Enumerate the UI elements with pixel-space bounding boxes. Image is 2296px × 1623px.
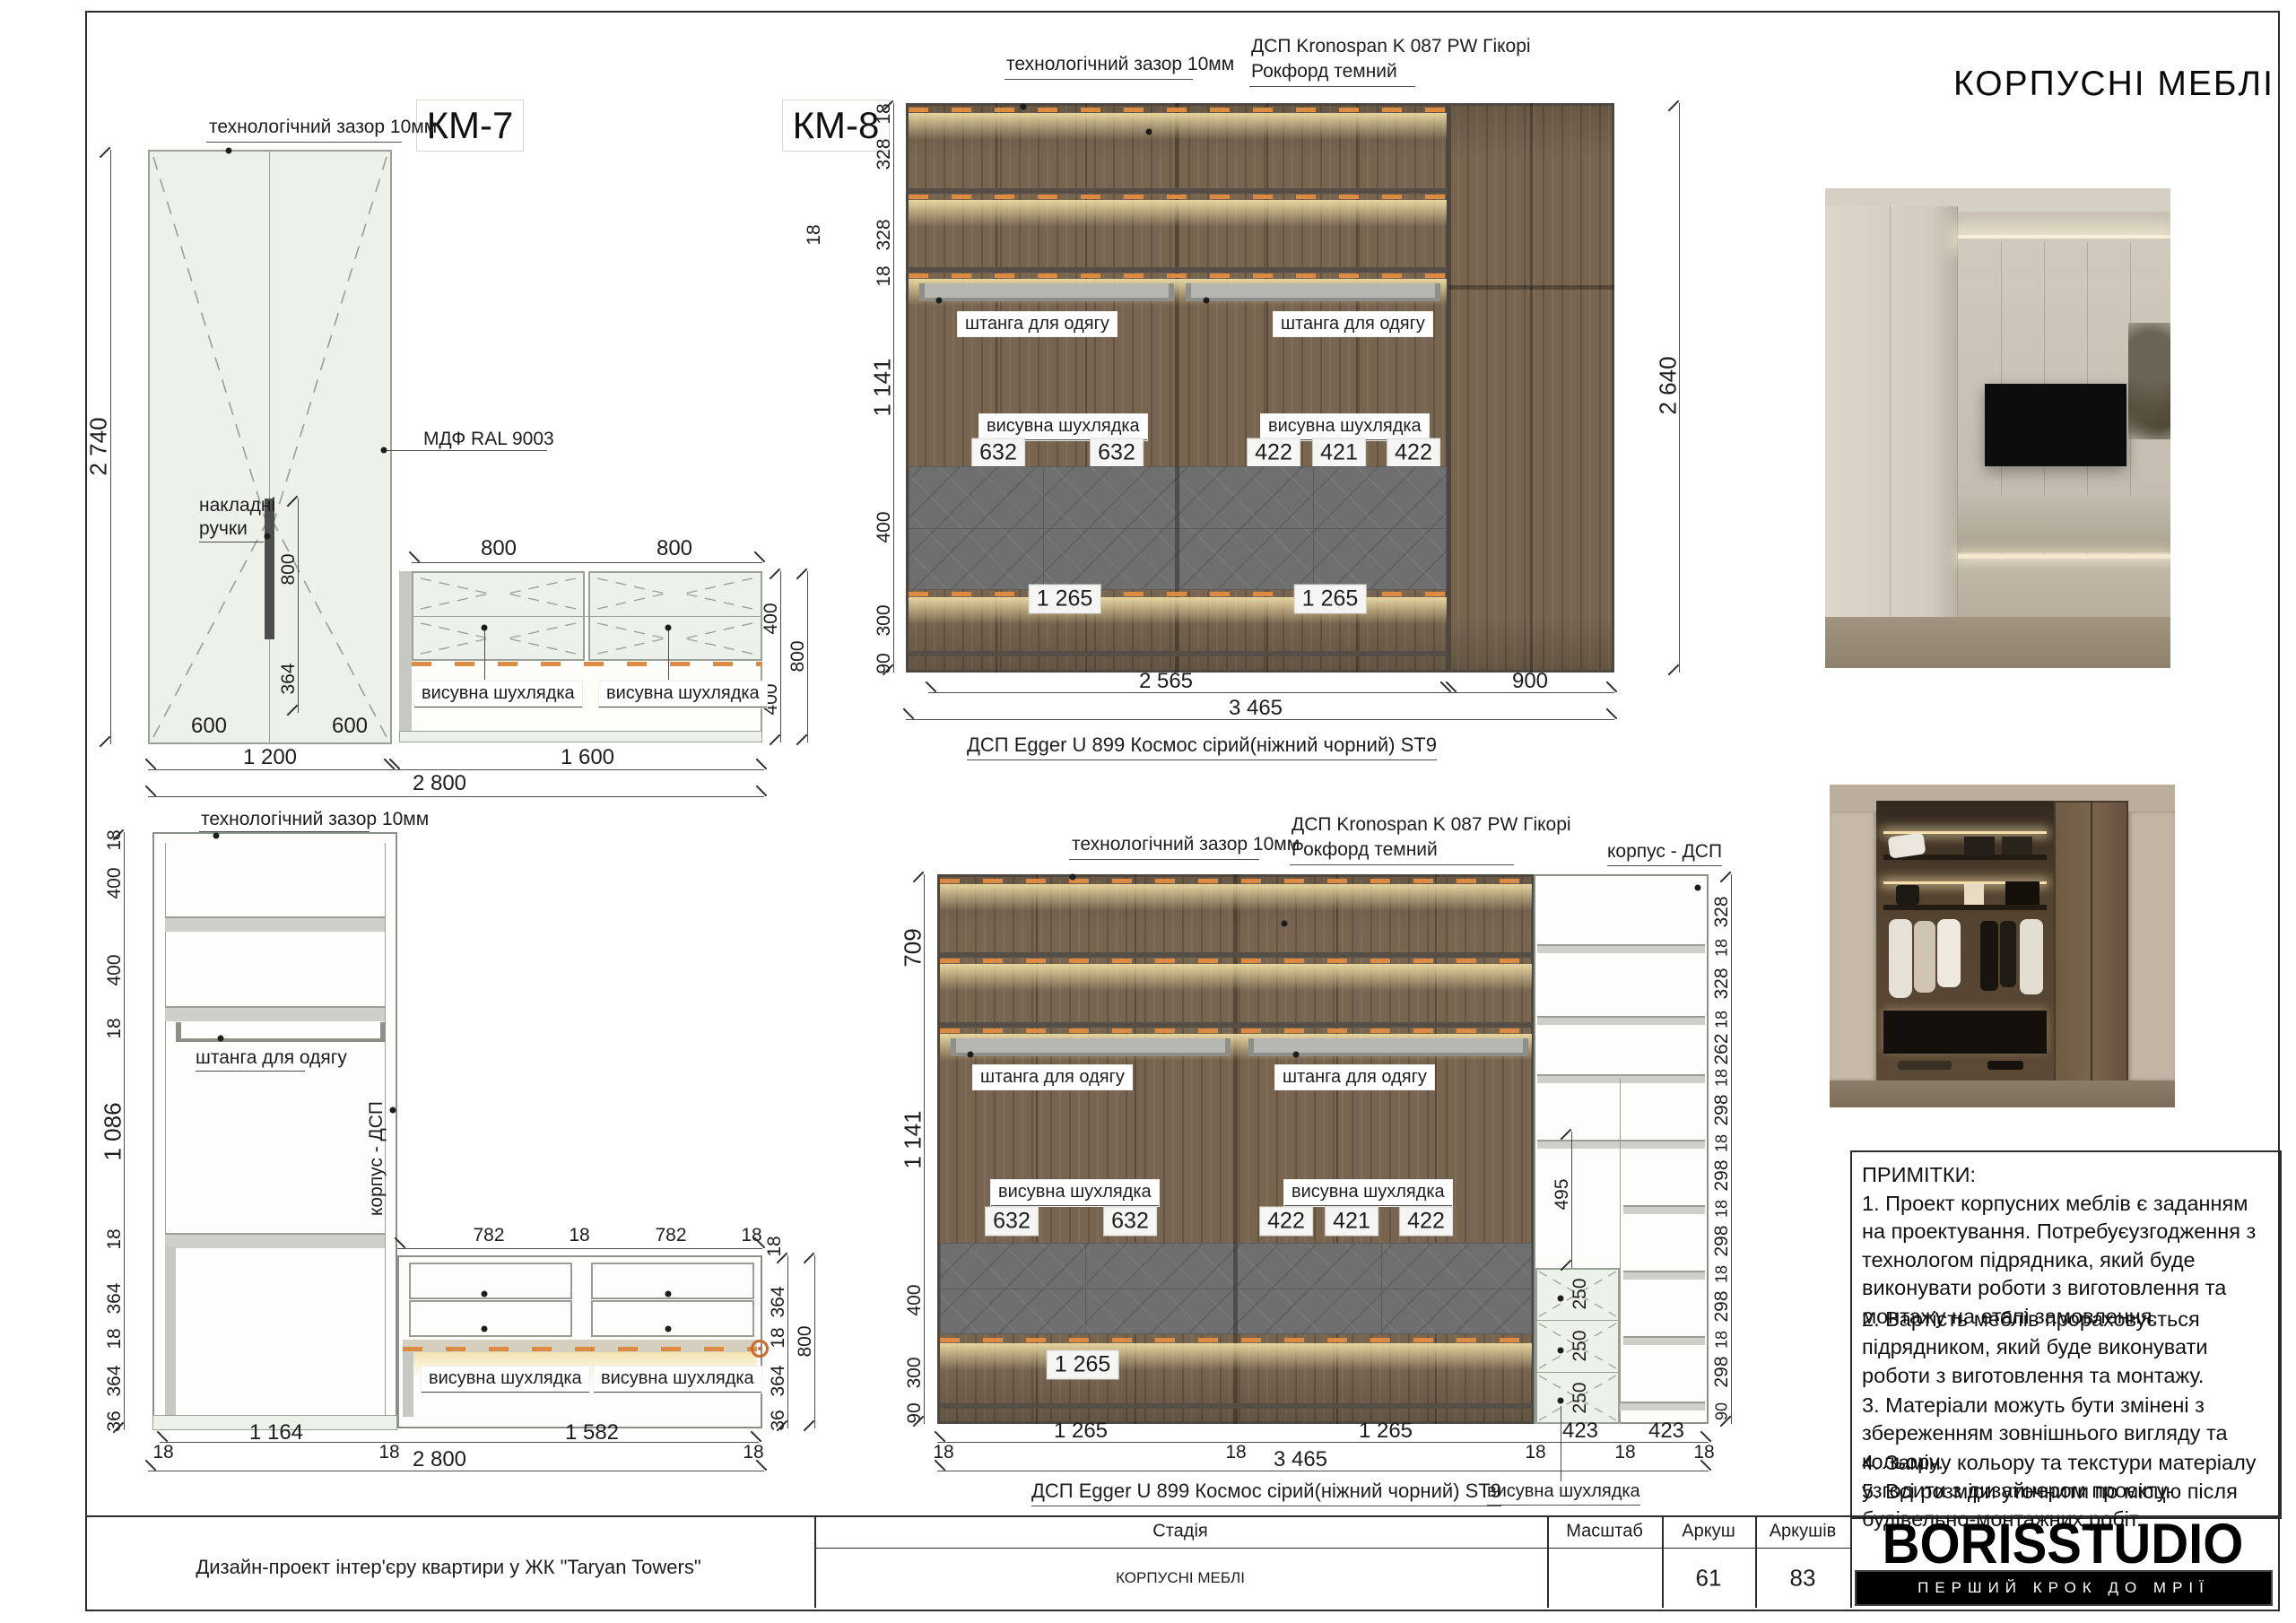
dim-label: 18 [1614,1442,1635,1463]
dim-label: 298 [1711,1290,1733,1322]
dim-line [412,562,762,563]
dim-label: 2 740 [85,417,113,475]
dim-label: 18 [1713,1331,1732,1349]
dim-label: 90 [874,653,895,673]
photo-side-door-right [2128,811,2175,1081]
clothes-rod [1186,283,1440,301]
dim-label: 1 141 [869,358,897,416]
dim-label: 90 [904,1402,926,1423]
shelf [165,916,385,932]
kronospan-label-1: ДСП Kronospan K 087 PW Гікорі [1291,814,1571,836]
photo-floor [1830,1081,2175,1107]
photo-box [1964,837,1995,855]
led-strip [940,1028,1532,1033]
notes-title: ПРИМІТКИ: [1862,1161,2267,1189]
dim-label: 1 200 [243,745,297,770]
dim-label: 400 [874,511,895,542]
dim-label: 422 [1248,439,1300,467]
leader-dot [482,1291,488,1298]
titleblock-divider [1547,1515,1549,1608]
dim-label: 1 164 [249,1420,303,1445]
dim-label: 328 [874,138,895,169]
dim-label: 18 [1713,1265,1732,1283]
kronospan-label-2: Рокфорд темний [1291,839,1438,861]
titleblock-divider [814,1515,816,1608]
dim-label: 18 [104,1228,126,1249]
shelf [1623,1336,1705,1345]
drawer-open-dashes [412,571,762,661]
dim-label: 1 141 [900,1110,927,1168]
dim-label: 1 086 [100,1102,127,1160]
dim-label: 18 [569,1225,589,1246]
leader-dot [665,625,672,631]
clothes-rod [951,1038,1231,1056]
leader-line [206,142,402,143]
led-strip [940,1338,1532,1342]
dim-label: 298 [1711,1356,1733,1387]
dim-label: 1 265 [1359,1419,1413,1444]
photo-garment-white3 [2020,919,2043,994]
dim-line [397,1248,762,1249]
dim-label: 300 [904,1357,926,1388]
dim-label: 18 [768,1327,789,1348]
handles-label-line2: ручки [199,518,248,540]
dim-label: 632 [986,1208,1038,1236]
leader-dot [1558,1398,1564,1404]
dim-label: 422 [1387,439,1439,467]
leader-line [386,450,547,451]
wardrobe-handle [265,499,274,639]
dim-label: 1 582 [565,1420,619,1445]
render-photo-wardrobe-interior [1830,785,2175,1107]
rod-label: штанга для одягу [1274,312,1432,336]
dim-label: 18 [743,1442,763,1463]
photo-shoes [1987,1061,2023,1070]
drawer-split [1535,1372,1620,1373]
sheets-header: Аркушів [1770,1522,1837,1542]
leader-dot [1558,1296,1564,1302]
dim-label: 364 [278,663,300,694]
drawer-label: висувна шухлядка [979,414,1147,440]
plinth-line [940,1403,1532,1409]
drawer-box [409,1300,572,1337]
photo-shoes [1898,1061,1952,1070]
shelf [165,1233,385,1248]
door-seam [1530,103,1533,673]
dim-label: 600 [332,714,368,739]
led-strip [909,108,1447,112]
leader-dot [482,1326,488,1332]
dim-label: 328 [1711,968,1733,999]
shelf [1537,1016,1705,1025]
tech-gap-label: технологічний зазор 10мм [201,809,429,830]
drawer-split [1535,1320,1620,1321]
photo-bag [1964,883,1984,905]
photo-garment-black2 [2000,921,2016,987]
photo-garment-white [1889,919,1912,998]
dim-label: 18 [874,103,895,124]
photo-lowboard [1958,495,2170,552]
photo-wardrobe-seam [1890,206,1891,628]
dim-label: 3 465 [1274,1447,1327,1472]
bay-split [1175,466,1179,590]
dim-label: 18 [1693,1442,1714,1463]
dim-label: 364 [104,1365,126,1396]
dim-line [780,571,781,742]
photo-garment-white2 [1937,919,1961,987]
dim-label: 90 [1713,1402,1732,1420]
shelf [1623,1205,1705,1214]
dim-line [148,796,764,797]
dim-label: 18 [874,265,895,286]
dim-label: 328 [874,219,895,250]
leader-dot [265,534,271,540]
led-glow [909,597,1447,624]
dim-label: 800 [657,536,692,561]
shelf-edge [940,1022,1532,1028]
drawer-label: висувна шухлядка [1261,414,1429,440]
drawing-sheet: КОРПУСНІ МЕБЛІ КМ-7 КМ-8 2 740 технологі… [0,0,2296,1623]
led-marker [751,1340,769,1358]
shelf [1537,944,1705,953]
page-title: КОРПУСНІ МЕБЛІ [1953,65,2274,104]
egger-label: ДСП Egger U 899 Космос сірий(ніжний чорн… [967,733,1437,760]
photo-garment-black [1980,921,1998,991]
dim-label: 18 [152,1442,173,1463]
dim-label: 423 [1562,1419,1598,1444]
dim-label: 421 [1313,439,1365,467]
plinth-line [909,651,1447,656]
drawer-label: висувна шухлядка [594,1367,761,1393]
rod-label: штанга для одягу [958,312,1117,336]
dim-label: 364 [104,1282,126,1314]
tech-gap-label: технологічний зазор 10мм [1006,54,1234,75]
dim-label: 298 [1711,1225,1733,1256]
dim-label: 298 [1711,1159,1733,1191]
dim-label: 422 [1260,1208,1312,1236]
drawer-box [409,1263,572,1299]
led-strip [940,879,1532,883]
drawer-box [591,1263,754,1299]
dim-label: 3 465 [1229,696,1283,721]
dim-label: 18 [104,1328,126,1349]
leader-dot [213,833,220,839]
photo-garment-beige [1914,921,1935,993]
leader-line [1249,86,1415,87]
dim-label: 18 [1713,1011,1732,1028]
dim-label: 300 [874,604,895,636]
dim-label: 2 565 [1139,669,1193,694]
led-strip [940,959,1532,963]
shelf-edge [940,952,1532,958]
dim-label: 18 [104,829,126,850]
titleblock-header-divider [814,1548,1850,1549]
note-item: 2. Вартість меблів прораховується підряд… [1862,1306,2271,1390]
leader-dot [1282,921,1288,927]
dim-label: 1 265 [1030,586,1100,613]
korpus-label: корпус - ДСП [1607,841,1722,866]
egger-label: ДСП Egger U 899 Космос сірий(ніжний чорн… [1031,1480,1501,1506]
led-glow [940,964,1532,991]
dim-label: 18 [1713,939,1732,957]
dim-label: 782 [655,1225,686,1246]
dim-label: 18 [1225,1442,1246,1463]
dim-label: 18 [1525,1442,1545,1463]
leader-line [484,628,485,680]
project-name: Дизайн-проект інтер'єру квартири у ЖК "T… [196,1556,700,1579]
led-glow [909,200,1447,227]
bay-split [1233,1243,1238,1334]
leader-dot [665,1326,672,1332]
dim-label: 632 [1104,1208,1156,1236]
dim-label: 36 [104,1410,126,1431]
led-strip [909,195,1447,199]
drawer-label: висувна шухлядка [991,1180,1159,1206]
leader-dot [1695,885,1701,891]
dim-label: 800 [795,1325,816,1357]
dim-label: 250 [1570,1278,1591,1309]
leader-dot [218,1036,224,1042]
leader-line [1561,1406,1561,1481]
photo-floor [1825,617,2170,668]
photo-side-door-left [1830,811,1876,1081]
leader-dot [936,298,943,304]
leader-line [1290,864,1514,865]
render-photo-tv-wall [1825,188,2170,668]
leader-dot [1293,1052,1300,1058]
leader-dot [1021,104,1027,110]
tech-gap-label: технологічний зазор 10мм [209,117,437,138]
photo-lowboard-led [1958,554,2170,559]
side-strip [403,1352,413,1417]
leader-line [1004,79,1193,80]
dim-label: 421 [1326,1208,1378,1236]
titleblock-divider [1662,1515,1664,1608]
photo-led-shelf [1883,831,2047,834]
door-split-line [269,150,270,744]
leader-dot [390,1107,396,1114]
shelf-edge [909,188,1447,194]
led-strip [909,273,1447,278]
dim-label: 18 [1713,1200,1732,1218]
dim-label: 400 [104,954,126,985]
korpus-label: корпус - ДСП [366,1101,387,1216]
dim-label: 400 [904,1284,926,1315]
leader-line [668,628,669,680]
handles-label-line1: накладні [199,495,275,516]
shelf [1623,1271,1705,1280]
dim-label: 2 800 [413,771,466,796]
dim-label: 36 [768,1410,789,1430]
shelf-edge [909,267,1447,273]
photo-door-seam [2091,801,2092,1083]
leader-dot [1146,129,1152,135]
dim-label: 250 [1570,1330,1591,1361]
dim-label: 632 [1091,439,1143,467]
dim-label: 1 265 [1054,1419,1108,1444]
sheet-header: Аркуш [1682,1522,1735,1542]
leader-dot [226,148,232,154]
dim-label: 328 [1711,896,1733,927]
drawer-label: висувна шухлядка [422,1367,589,1393]
dim-label: 423 [1648,1419,1684,1444]
stage-header: Стадія [1152,1522,1207,1542]
dim-label: 709 [900,928,927,967]
shelf [165,1006,385,1021]
dim-label: 1 265 [1048,1351,1118,1379]
dim-label: 364 [768,1365,789,1396]
leader-dot [665,1291,672,1298]
dim-label: 262 [1711,1033,1733,1064]
led-glow [909,113,1447,140]
leader-dot [1070,874,1076,881]
dim-label: 800 [481,536,517,561]
studio-logo: BORISSTUDIO [1883,1512,2244,1576]
led-glow [940,1343,1532,1370]
dim-label: 18 [741,1225,761,1246]
dim-label: 495 [1552,1178,1573,1210]
rod-label: штанга для одягу [973,1065,1132,1089]
rod-label: штанга для одягу [1275,1065,1434,1089]
dim-label: 18 [804,224,825,245]
studio-tagline: ПЕРШИЙ КРОК ДО МРІЇ [1857,1572,2271,1604]
side-strip [165,1246,176,1415]
dim-label: 18 [1713,1069,1732,1087]
drawer-label: висувна шухлядка [1487,1481,1640,1506]
dim-label: 400 [761,603,782,634]
rod-label: штанга для одягу [196,1047,347,1069]
dim-label: 400 [104,867,126,898]
photo-shelf-board [1883,905,2047,910]
leader-dot [1204,298,1210,304]
dim-label: 18 [764,1236,786,1256]
photo-box [2002,837,2032,855]
leader-line [199,542,264,542]
sheet-number: 61 [1696,1565,1722,1593]
dim-label: 250 [1570,1382,1591,1413]
leader-dot [381,447,387,454]
kronospan-label-2: Рокфорд темний [1251,61,1397,82]
door-swing-dashes [148,150,392,744]
leader-line [196,1071,305,1072]
titleblock-divider [1755,1515,1757,1608]
dim-label: 600 [191,714,227,739]
clothes-rod [919,283,1174,301]
dim-label: 18 [1713,1134,1732,1152]
leader-line [199,831,370,832]
drawer-label: висувна шухлядка [1284,1180,1452,1206]
dim-label: 18 [378,1442,399,1463]
dim-label: 800 [278,553,300,585]
dim-label: 900 [1512,669,1548,694]
photo-trunk [2005,881,2039,905]
photo-bag [1896,885,1919,905]
led-strip [403,1347,757,1351]
led-strip [909,592,1447,596]
dim-label: 2 640 [1655,356,1683,414]
kronospan-label-1: ДСП Kronospan K 087 PW Гікорі [1251,36,1531,57]
scale-header: Масштаб [1566,1522,1643,1542]
leader-dot [968,1052,974,1058]
titleblock-divider [1850,1515,1852,1608]
sheets-total: 83 [1790,1565,1816,1593]
dim-label: 298 [1711,1094,1733,1125]
shelf [1537,1140,1705,1149]
mdf-label: МДФ RAL 9003 [423,429,554,450]
dim-label: 18 [104,1018,126,1038]
photo-tv [1985,384,2126,466]
dim-label: 422 [1400,1208,1452,1236]
photo-wardrobe [1825,206,1958,628]
leader-dot [1558,1348,1564,1354]
dim-label: 2 800 [413,1447,466,1472]
drawer-label: висувна шухлядка [599,681,767,707]
drawer-box [591,1300,754,1337]
bench-side-panel [399,571,412,742]
dim-label: 632 [972,439,1024,467]
shelf [1537,1074,1705,1083]
dim-label: 1 600 [561,745,614,770]
bench-bottom-panel [399,731,762,742]
drawer-label: висувна шухлядка [414,681,582,707]
dim-label: 1 265 [1295,586,1366,613]
dim-label: 364 [768,1286,789,1317]
photo-plant [2128,323,2170,439]
leader-line [1069,859,1259,860]
leader-dot [482,625,488,631]
dim-label: 800 [787,640,809,672]
led-glow [940,884,1532,911]
clothes-rod [1248,1038,1528,1056]
stage-value: КОРПУСНІ МЕБЛІ [1116,1569,1245,1587]
dim-label: 782 [473,1225,504,1246]
photo-base-drawers [1883,1011,2047,1054]
clothes-rod [176,1022,386,1042]
carcass-divider [1620,1078,1621,1424]
tech-gap-label: технологічний зазор 10мм [1072,834,1300,855]
